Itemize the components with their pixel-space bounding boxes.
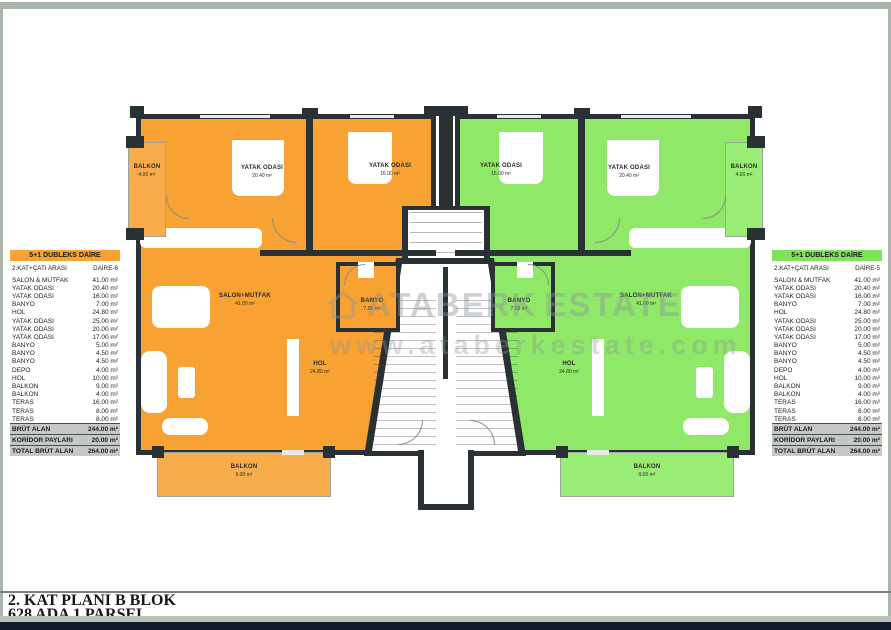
room-name-cell: BALKON <box>12 391 38 398</box>
watermark-brand-right: ESTATE <box>544 286 681 324</box>
room-area: 20.40 m² <box>608 173 650 179</box>
furniture-coffee-table <box>696 367 713 398</box>
wall-stub <box>727 446 739 458</box>
table-row: YATAK ODASI 20.00 m² <box>772 325 882 333</box>
room-name-cell: SALON & MUTFAK <box>774 277 830 284</box>
room-area-cell: 10.00 m² <box>854 375 880 382</box>
table-header: 5+1 DUBLEKS DAİRE <box>772 250 882 261</box>
wall-stub <box>126 228 144 240</box>
room-name-cell: BANYO <box>12 301 35 308</box>
room-name-cell: YATAK ODASI <box>12 293 54 300</box>
table-row: TERAS 8.00 m² <box>10 415 120 423</box>
summary-label: BRÜT ALAN <box>12 426 50 433</box>
room-name-cell: TERAS <box>12 399 34 406</box>
watermark-url: www.ataberkestate.com <box>330 330 742 361</box>
summary-row: BRÜT ALAN 244.00 m² <box>772 423 882 434</box>
wall-stub <box>556 446 568 458</box>
table-row: HOL 10.00 m² <box>772 374 882 382</box>
wall-stub <box>747 136 765 148</box>
table-row: YATAK ODASI 17.00 m² <box>10 333 120 341</box>
furniture-tv-unit <box>683 418 729 435</box>
room-area-cell: 10.00 m² <box>92 375 118 382</box>
wall-stub <box>748 106 762 118</box>
floor-label: 2.KAT+ÇATI ARASI <box>774 265 829 272</box>
summary-label: KORİDOR PAYLARI <box>12 437 73 444</box>
room-label-salon-mutfak: SALON+MUTFAK 41.00 m² <box>219 293 271 307</box>
wall-bedroom-divider-right <box>578 114 585 256</box>
wall-stub <box>152 446 164 458</box>
room-name-cell: DEPO <box>774 367 792 374</box>
room-label-balkon: BALKON 9.00 m² <box>634 464 661 478</box>
wall-segment <box>260 250 436 256</box>
room-area-cell: 7.00 m² <box>858 301 880 308</box>
summary-label: TOTAL BRÜT ALAN <box>774 448 835 455</box>
balcony-door-opening <box>282 450 304 455</box>
wall-segment <box>468 450 474 508</box>
table-row: BANYO 4.50 m² <box>772 350 882 358</box>
room-area-cell: 24.80 m² <box>854 309 880 316</box>
room-area-cell: 7.00 m² <box>96 301 118 308</box>
room-area: 9.00 m² <box>231 472 258 478</box>
room-name-cell: YATAK ODASI <box>774 334 816 341</box>
room-area-cell: 41.00 m² <box>854 277 880 284</box>
room-label-balkon: BALKON 4.00 m² <box>134 164 161 178</box>
room-area-cell: 4.00 m² <box>96 367 118 374</box>
room-label-yatak-odasi: YATAK ODASI 16.00 m² <box>480 163 522 177</box>
window <box>350 115 394 118</box>
wall-segment <box>439 114 453 210</box>
room-area-cell: 24.80 m² <box>92 309 118 316</box>
entry-corridor <box>424 450 468 506</box>
table-row: YATAK ODASI 20.00 m² <box>10 325 120 333</box>
room-area-cell: 8.00 m² <box>96 408 118 415</box>
room-area-cell: 4.50 m² <box>96 350 118 357</box>
wall-bedroom-divider-left <box>306 114 313 256</box>
table-header: 5+1 DUBLEKS DAİRE <box>10 250 120 261</box>
furniture-dining-table <box>681 286 739 328</box>
table-row: YATAK ODASI 20.40 m² <box>772 284 882 292</box>
room-name-cell: DEPO <box>12 367 30 374</box>
room-label-hol: HOL 24.80 m² <box>310 361 330 375</box>
wall-stub <box>747 228 765 240</box>
table-row: BALKON 9.00 m² <box>10 382 120 390</box>
room-name-cell: YATAK ODASI <box>12 318 54 325</box>
summary-value: 244.00 m² <box>88 426 118 433</box>
frame-left <box>0 2 3 622</box>
summary-value: 264.00 m² <box>88 448 118 455</box>
wall-stub <box>302 108 318 116</box>
table-row: BANYO 5.00 m² <box>772 342 882 350</box>
table-row: BANYO 5.00 m² <box>10 342 120 350</box>
frame-top <box>0 2 891 9</box>
table-row: HOL 24.80 m² <box>10 309 120 317</box>
room-name-cell: TERAS <box>12 416 34 423</box>
table-row: BANYO 4.50 m² <box>772 358 882 366</box>
watermark-brand: ATABERK ESTATE <box>326 286 682 324</box>
table-row: BANYO 7.00 m² <box>772 301 882 309</box>
summary-label: BRÜT ALAN <box>774 426 812 433</box>
wall-segment <box>418 450 424 508</box>
room-name-cell: BALKON <box>774 383 800 390</box>
table-row: TERAS 8.00 m² <box>772 407 882 415</box>
room-name-cell: TERAS <box>774 416 796 423</box>
table-row: HOL 24.80 m² <box>772 309 882 317</box>
summary-row: BRÜT ALAN 244.00 m² <box>10 423 120 434</box>
room-name: BALKON <box>731 164 758 172</box>
summary-value: 20.00 m² <box>854 437 880 444</box>
room-name: YATAK ODASI <box>241 165 283 173</box>
wall-segment <box>455 250 631 256</box>
furniture-kitchen-counter <box>287 339 299 416</box>
table-row: HOL 10.00 m² <box>10 374 120 382</box>
table-row: BANYO 7.00 m² <box>10 301 120 309</box>
table-rows: SALON & MUTFAK 41.00 m² YATAK ODASI 20.4… <box>10 276 120 423</box>
room-name: HOL <box>310 361 330 369</box>
room-area: 24.80 m² <box>310 369 330 375</box>
room-name-cell: TERAS <box>774 408 796 415</box>
house-outline-icon <box>326 290 360 320</box>
room-name-cell: BANYO <box>774 350 797 357</box>
room-area: 24.80 m² <box>559 369 579 375</box>
room-name-cell: HOL <box>12 309 25 316</box>
room-name-cell: YATAK ODASI <box>12 285 54 292</box>
room-name-cell: YATAK ODASI <box>12 326 54 333</box>
room-name-cell: BANYO <box>774 342 797 349</box>
room-label-yatak-odasi: YATAK ODASI 16.00 m² <box>369 163 411 177</box>
table-row: YATAK ODASI 16.00 m² <box>10 292 120 300</box>
wall-stub <box>130 106 144 118</box>
room-area-cell: 9.00 m² <box>858 383 880 390</box>
room-label-hol: HOL 24.80 m² <box>559 361 579 375</box>
table-summary: BRÜT ALAN 244.00 m² KORİDOR PAYLARI 20.0… <box>10 423 120 456</box>
room-area-cell: 16.00 m² <box>92 399 118 406</box>
table-row: YATAK ODASI 16.00 m² <box>772 292 882 300</box>
wall-stub <box>574 108 590 116</box>
room-name: HOL <box>559 361 579 369</box>
summary-value: 244.00 m² <box>850 426 880 433</box>
wall-stub <box>126 136 144 148</box>
table-row: TERAS 16.00 m² <box>10 399 120 407</box>
room-area-cell: 4.00 m² <box>858 391 880 398</box>
room-area: 16.00 m² <box>480 171 522 177</box>
table-subheader: 2.KAT+ÇATI ARASI DAİRE-6 <box>10 263 120 273</box>
wall-stub <box>323 446 335 458</box>
furniture-tv-unit <box>162 418 208 435</box>
window <box>621 115 691 118</box>
room-area-cell: 8.00 m² <box>96 416 118 423</box>
room-area: 9.00 m² <box>634 472 661 478</box>
room-area-cell: 4.00 m² <box>858 367 880 374</box>
table-row: SALON & MUTFAK 41.00 m² <box>772 276 882 284</box>
room-area-cell: 8.00 m² <box>858 408 880 415</box>
room-area-cell: 8.00 m² <box>858 416 880 423</box>
table-row: YATAK ODASI 17.00 m² <box>772 333 882 341</box>
table-row: YATAK ODASI 25.00 m² <box>772 317 882 325</box>
wall-stub <box>424 106 468 116</box>
table-row: BANYO 4.50 m² <box>10 350 120 358</box>
room-name-cell: BANYO <box>774 358 797 365</box>
area-table-right: 5+1 DUBLEKS DAİRE 2.KAT+ÇATI ARASI DAİRE… <box>772 250 882 456</box>
table-row: BALKON 4.00 m² <box>772 391 882 399</box>
balcony-door-opening <box>587 450 609 455</box>
floor-label: 2.KAT+ÇATI ARASI <box>12 265 67 272</box>
table-rows: SALON & MUTFAK 41.00 m² YATAK ODASI 20.4… <box>772 276 882 423</box>
room-name-cell: BANYO <box>12 342 35 349</box>
room-name-cell: HOL <box>774 375 787 382</box>
table-row: TERAS 8.00 m² <box>10 407 120 415</box>
table-row: BALKON 9.00 m² <box>772 382 882 390</box>
room-label-balkon: BALKON 9.00 m² <box>231 464 258 478</box>
table-row: YATAK ODASI 25.00 m² <box>10 317 120 325</box>
room-name-cell: TERAS <box>774 399 796 406</box>
summary-value: 20.00 m² <box>92 437 118 444</box>
room-area: 20.40 m² <box>241 173 283 179</box>
wall-segment <box>418 504 474 510</box>
summary-value: 264.00 m² <box>850 448 880 455</box>
summary-label: TOTAL BRÜT ALAN <box>12 448 73 455</box>
summary-row: KORİDOR PAYLARI 20.00 m² <box>10 434 120 445</box>
table-row: BALKON 4.00 m² <box>10 391 120 399</box>
table-row: DEPO 4.00 m² <box>772 366 882 374</box>
room-area-cell: 4.50 m² <box>96 358 118 365</box>
table-row: SALON & MUTFAK 41.00 m² <box>10 276 120 284</box>
area-table-left: 5+1 DUBLEKS DAİRE 2.KAT+ÇATI ARASI DAİRE… <box>10 250 120 456</box>
room-name: BALKON <box>634 464 661 472</box>
room-name: BALKON <box>134 164 161 172</box>
room-name-cell: YATAK ODASI <box>774 326 816 333</box>
room-name: YATAK ODASI <box>480 163 522 171</box>
room-area: 4.00 m² <box>134 172 161 178</box>
table-row: TERAS 8.00 m² <box>772 415 882 423</box>
room-name-cell: BALKON <box>12 383 38 390</box>
room-area-cell: 4.50 m² <box>858 358 880 365</box>
room-name: SALON+MUTFAK <box>219 293 271 301</box>
room-area-cell: 41.00 m² <box>92 277 118 284</box>
room-area-cell: 25.00 m² <box>854 318 880 325</box>
room-label-yatak-odasi: YATAK ODASI 20.40 m² <box>608 165 650 179</box>
table-row: DEPO 4.00 m² <box>10 366 120 374</box>
unit-label: DAİRE-6 <box>93 265 118 272</box>
room-name: YATAK ODASI <box>608 165 650 173</box>
floor-plan-page: BALKON 4.00 m² YATAK ODASI 20.40 m² YATA… <box>0 0 891 630</box>
unit-label: DAİRE-5 <box>855 265 880 272</box>
room-area-cell: 16.00 m² <box>854 293 880 300</box>
room-area: 16.00 m² <box>369 171 411 177</box>
room-area-cell: 17.00 m² <box>92 334 118 341</box>
room-name-cell: YATAK ODASI <box>12 334 54 341</box>
summary-row: KORİDOR PAYLARI 20.00 m² <box>772 434 882 445</box>
room-area-cell: 17.00 m² <box>854 334 880 341</box>
room-area: 41.00 m² <box>219 301 271 307</box>
room-name-cell: BANYO <box>12 350 35 357</box>
room-area-cell: 9.00 m² <box>96 383 118 390</box>
furniture-sofa <box>141 351 167 413</box>
room-area: 4.00 m² <box>731 172 758 178</box>
bottom-dark-bar <box>0 622 891 630</box>
room-name-cell: HOL <box>774 309 787 316</box>
room-area-cell: 25.00 m² <box>92 318 118 325</box>
room-name-cell: YATAK ODASI <box>774 285 816 292</box>
room-area-cell: 16.00 m² <box>854 399 880 406</box>
room-name-cell: BANYO <box>12 358 35 365</box>
window <box>200 115 270 118</box>
balcony-side-left <box>128 142 166 237</box>
table-subheader: 2.KAT+ÇATI ARASI DAİRE-5 <box>772 263 882 273</box>
room-name: BALKON <box>231 464 258 472</box>
room-name-cell: BANYO <box>774 301 797 308</box>
table-row: YATAK ODASI 20.40 m² <box>10 284 120 292</box>
room-area-cell: 20.40 m² <box>854 285 880 292</box>
room-area-cell: 20.00 m² <box>92 326 118 333</box>
room-area-cell: 20.00 m² <box>854 326 880 333</box>
balcony-rail <box>157 452 331 453</box>
furniture-dining-table <box>152 286 210 328</box>
balcony-side-right <box>725 142 763 237</box>
room-area-cell: 5.00 m² <box>96 342 118 349</box>
room-label-yatak-odasi: YATAK ODASI 20.40 m² <box>241 165 283 179</box>
room-area-cell: 5.00 m² <box>858 342 880 349</box>
watermark-brand-left: ATABERK <box>367 286 537 324</box>
table-summary: BRÜT ALAN 244.00 m² KORİDOR PAYLARI 20.0… <box>772 423 882 456</box>
room-name-cell: YATAK ODASI <box>774 318 816 325</box>
room-name-cell: BALKON <box>774 391 800 398</box>
room-area-cell: 16.00 m² <box>92 293 118 300</box>
room-name-cell: SALON & MUTFAK <box>12 277 68 284</box>
summary-row: TOTAL BRÜT ALAN 264.00 m² <box>10 445 120 456</box>
room-area-cell: 4.50 m² <box>858 350 880 357</box>
window <box>497 115 541 118</box>
room-name-cell: TERAS <box>12 408 34 415</box>
table-row: BANYO 4.50 m² <box>10 358 120 366</box>
room-name-cell: HOL <box>12 375 25 382</box>
table-row: TERAS 16.00 m² <box>772 399 882 407</box>
furniture-coffee-table <box>178 367 195 398</box>
summary-row: TOTAL BRÜT ALAN 264.00 m² <box>772 445 882 456</box>
room-name: YATAK ODASI <box>369 163 411 171</box>
room-label-balkon: BALKON 4.00 m² <box>731 164 758 178</box>
summary-label: KORİDOR PAYLARI <box>774 437 835 444</box>
room-name-cell: YATAK ODASI <box>774 293 816 300</box>
room-area-cell: 4.00 m² <box>96 391 118 398</box>
room-area-cell: 20.40 m² <box>92 285 118 292</box>
